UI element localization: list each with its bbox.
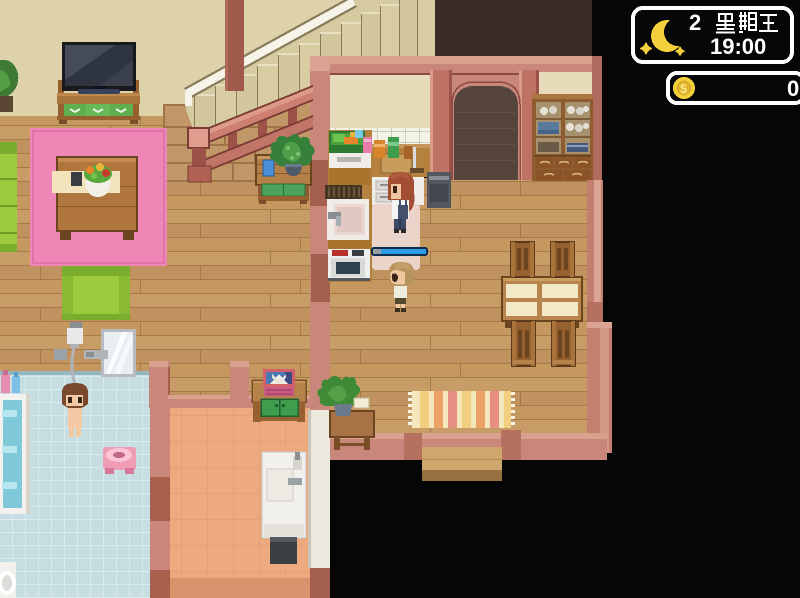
svg-text:0: 0 [787,76,799,101]
svg-text:2: 2 [689,10,701,35]
svg-text:19:00: 19:00 [710,34,766,59]
svg-text:$: $ [680,81,688,96]
